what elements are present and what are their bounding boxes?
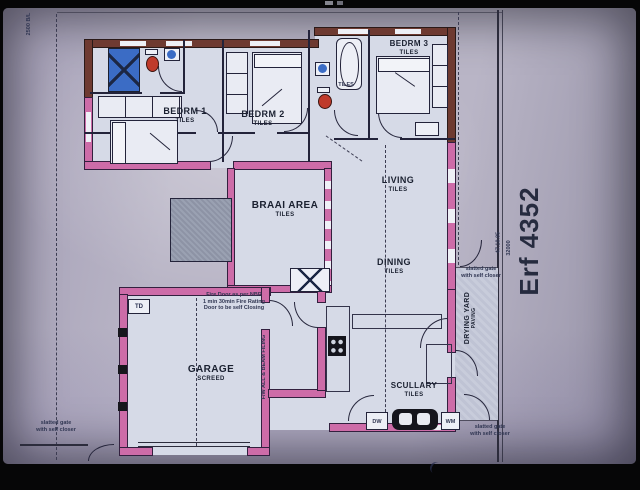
- gate-arc-bottom-left: [88, 444, 114, 461]
- toilet2-cistern-icon: [317, 87, 330, 93]
- window-hatch: [118, 328, 127, 337]
- gate-note-drying-bottom: slatted gatewith self closer: [466, 424, 514, 437]
- floor-plan-photo: 2500 B/L Erf 4352 47.10.05 32000: [0, 0, 640, 490]
- bed-bedrm3: [376, 56, 430, 114]
- wall-left-upper: [85, 40, 92, 98]
- wall-top-right: [315, 28, 455, 35]
- room-label-bedrm1: BEDRM 1TILES: [150, 107, 220, 124]
- partition-bath2-bottom: [334, 138, 370, 140]
- partition-bath1-right: [183, 40, 185, 92]
- fire-door-note: Fire Door as per NBR 1 min 30min Fire Ra…: [181, 292, 287, 312]
- dishwasher-box: DW: [366, 412, 388, 430]
- gate-arc-drying-top: [460, 240, 482, 267]
- pen-mark: [428, 460, 444, 476]
- building-line-label: 2500 B/L: [26, 0, 34, 54]
- wall-garage-bottom-b: [248, 448, 269, 455]
- window: [395, 29, 421, 34]
- wall-lobby-bottom: [269, 390, 325, 397]
- room-label-bedrm2: BEDRM 2TILES: [228, 110, 298, 127]
- wardrobe-bedrm2: [226, 52, 248, 114]
- room-label-garage: GARAGESCREED: [176, 364, 246, 383]
- partition-passage-top-b: [218, 132, 255, 134]
- partition-bedrm3-bottom-a: [370, 138, 378, 140]
- washing-machine-box: WM: [441, 412, 460, 430]
- boundary-dimension-label: 32000: [506, 213, 514, 283]
- braai-structure-icon: [170, 198, 232, 262]
- scullery-counter-right: [426, 344, 452, 384]
- kitchen-counter-top: [352, 314, 442, 329]
- window: [166, 41, 192, 46]
- toilet2-icon: [318, 94, 332, 109]
- erf-boundary-top-line: [57, 12, 502, 13]
- window: [86, 112, 91, 142]
- wall-kitchen-left-b: [318, 328, 325, 390]
- toilet-icon: [146, 56, 159, 72]
- bath2-finish-label: TILES: [332, 82, 360, 89]
- room-label-braai: BRAAI AREATILES: [240, 200, 330, 219]
- basin2-icon: [318, 64, 327, 73]
- partition-bath1-bottom-a: [90, 92, 142, 94]
- garage-wall-note: F/W ALL & BEAM FILING: [261, 322, 271, 412]
- shower-icon: [108, 48, 140, 92]
- room-label-bedrm3: BEDRM 3TILES: [380, 40, 438, 56]
- wall-right-living-windows: [448, 143, 455, 290]
- window-hatch: [118, 402, 127, 411]
- gate-note-bottom-left: slatted gatewith self closer: [32, 420, 80, 433]
- partition-bath2-bedrm3: [368, 30, 370, 140]
- room-label-drying-yard: DRYING YARD PAVING: [464, 278, 490, 358]
- partition-bedrm2-bath2: [308, 30, 310, 162]
- wall-braai-top: [234, 162, 331, 169]
- window: [250, 41, 280, 46]
- room-label-dining: DININGTILES: [362, 258, 426, 275]
- site-wall-bottom-left: [20, 444, 88, 446]
- building-line-left: [56, 14, 57, 460]
- floor-plan-drawing: 2500 B/L Erf 4352 47.10.05 32000: [0, 0, 640, 490]
- partition-bedrm3-bottom-b: [400, 138, 455, 140]
- basin-icon: [167, 50, 176, 59]
- wall-garage-bottom-a: [120, 448, 152, 455]
- garage-door-line: [138, 446, 250, 447]
- wall-right-upper: [448, 28, 455, 143]
- building-line-right: [458, 12, 459, 265]
- window: [120, 41, 146, 46]
- partition-passage-top-c: [277, 132, 308, 134]
- garage-door-line: [138, 442, 250, 443]
- window-hatch: [118, 365, 127, 374]
- toilet-cistern-icon: [145, 49, 158, 55]
- bed-bedrm1: [110, 120, 178, 164]
- partition-bath1-bottom-b: [160, 92, 185, 94]
- room-label-scullery: SCULLARYTILES: [380, 382, 448, 398]
- drying-yard-bottom-line: [455, 420, 498, 421]
- wall-right-scullery-a: [448, 290, 455, 352]
- braai-unit-icon: [290, 268, 330, 292]
- trap-door-box: TD: [128, 299, 150, 314]
- erf-number-label: Erf 4352: [514, 176, 546, 306]
- window: [338, 29, 368, 34]
- stove-icon: [328, 336, 346, 356]
- double-sink-icon: [392, 409, 438, 430]
- room-label-living: LIVINGTILES: [368, 176, 428, 193]
- bedside-table-bedrm3: [415, 122, 439, 136]
- gate-note-drying-top: slatted gatewith self closer: [458, 266, 504, 279]
